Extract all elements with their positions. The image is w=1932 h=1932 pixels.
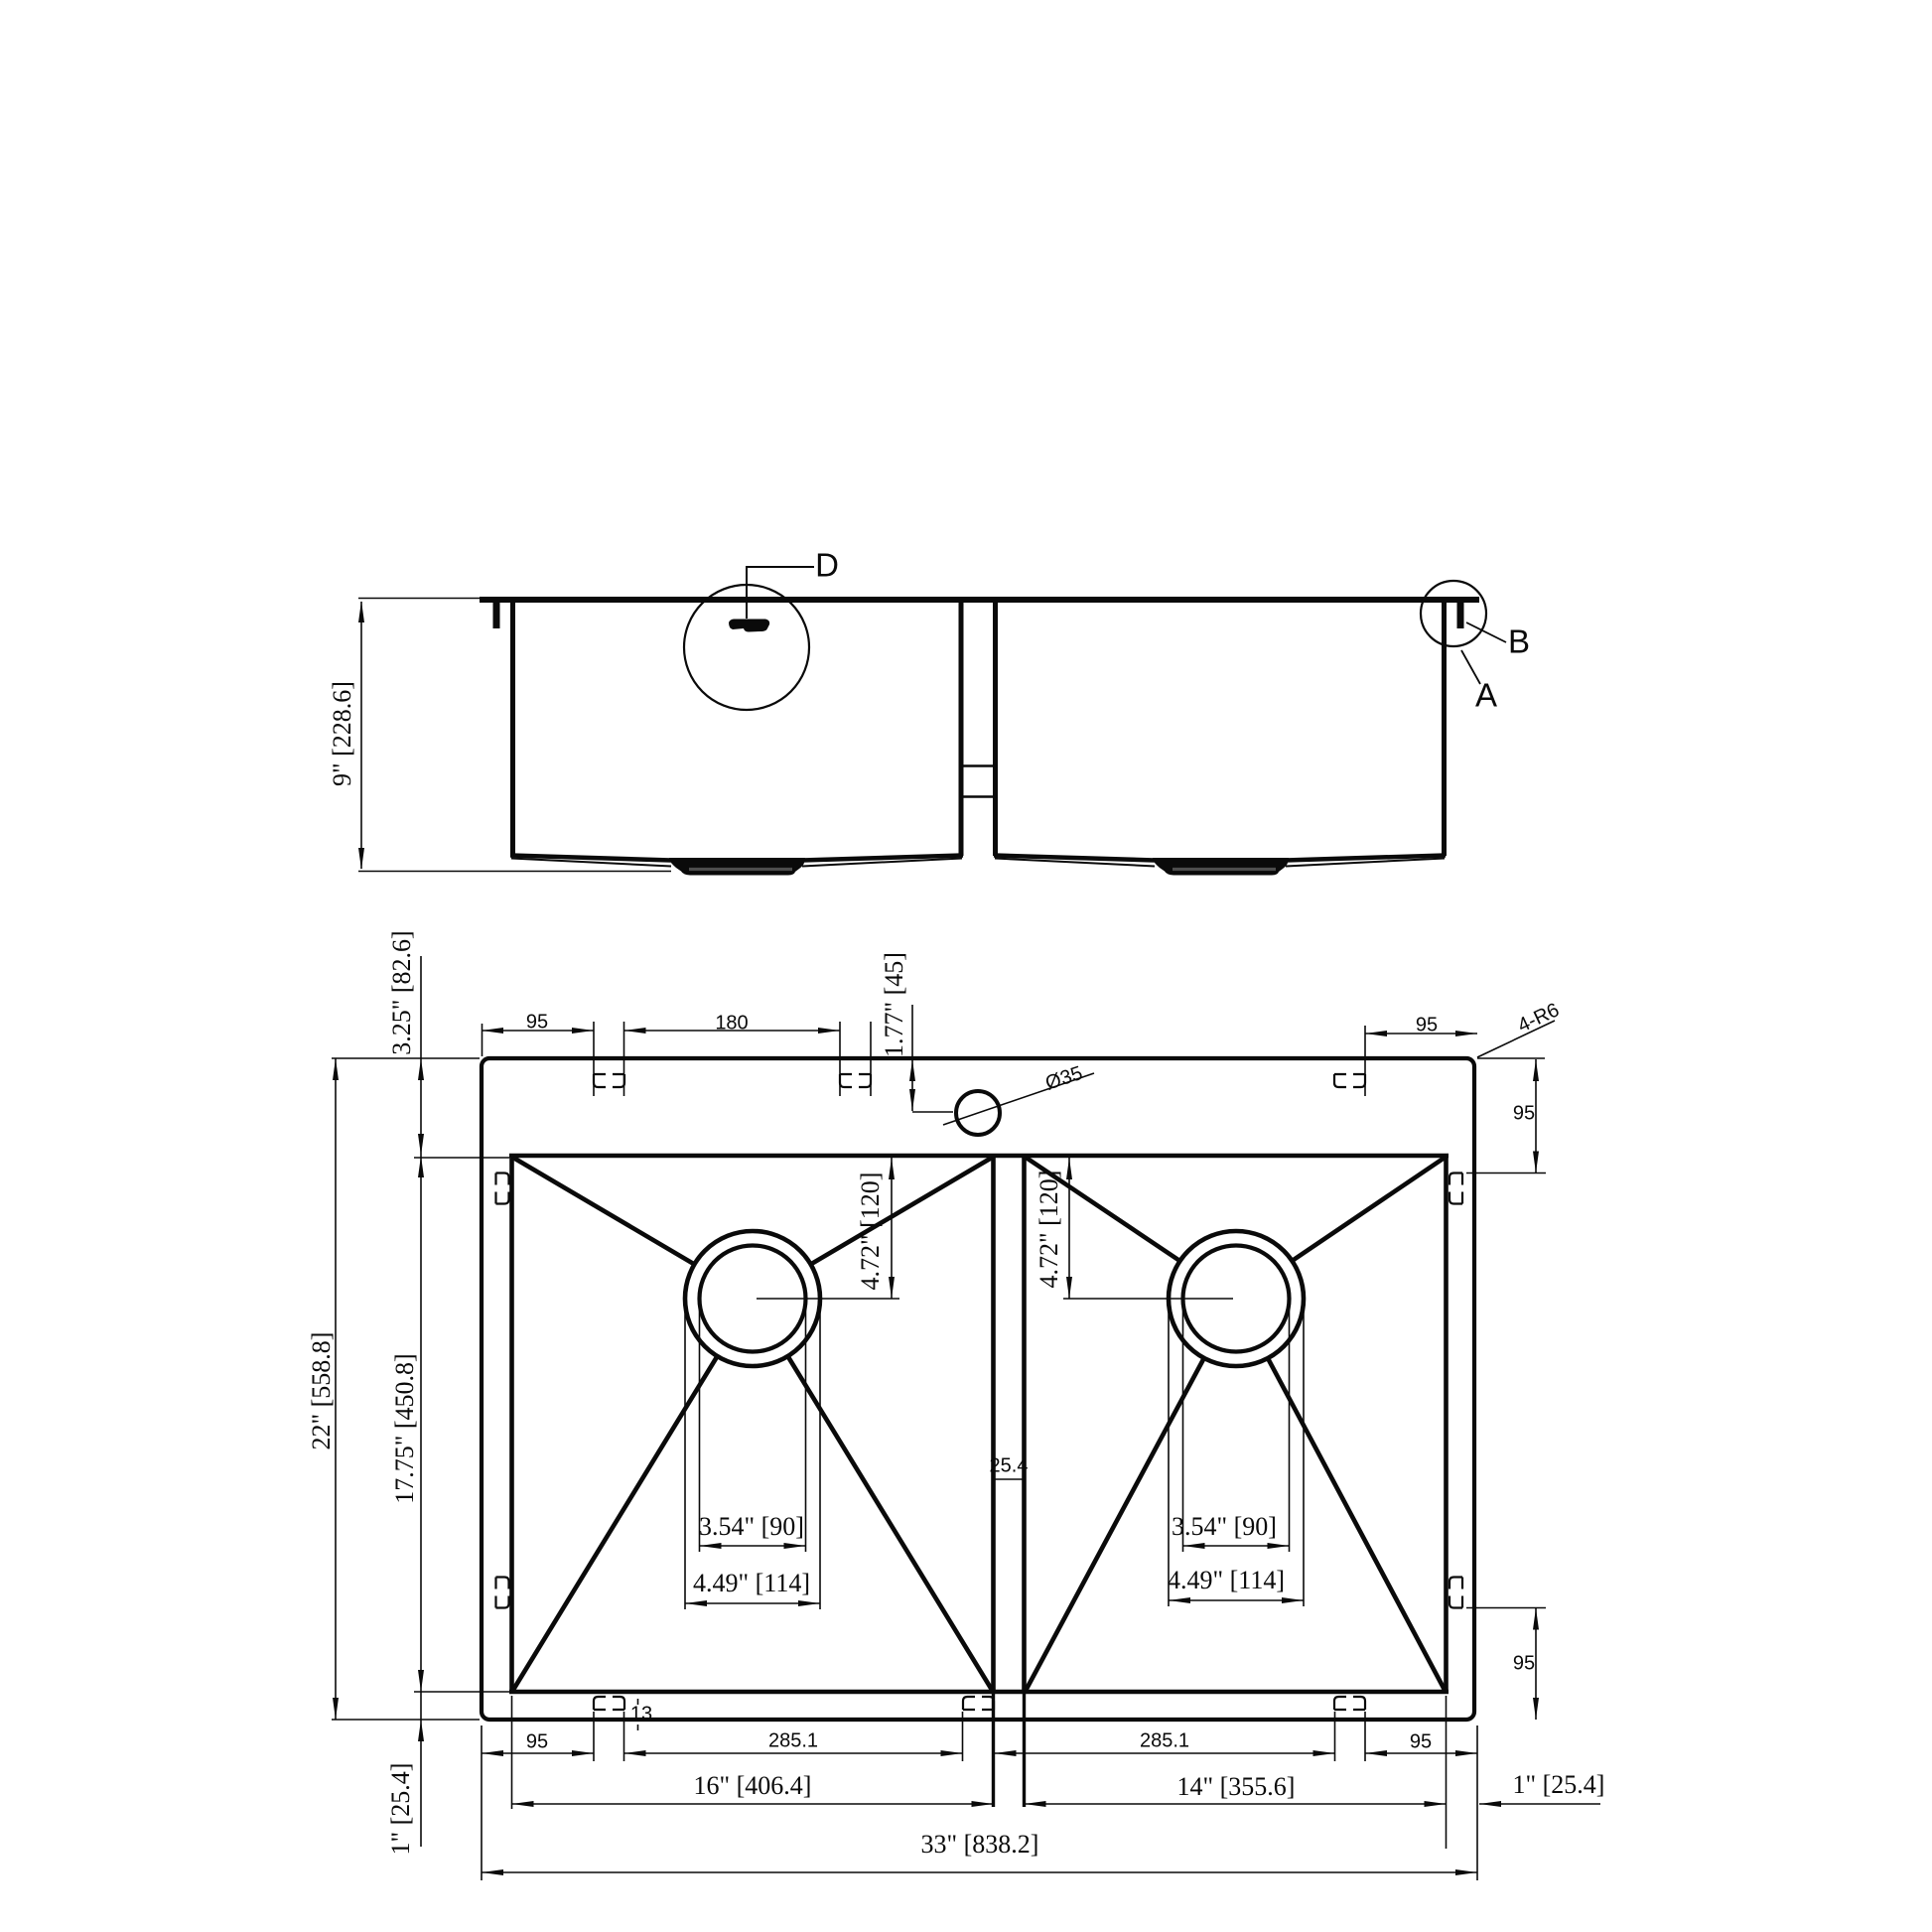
svg-text:3.54" [90]: 3.54" [90] (699, 1512, 804, 1541)
svg-text:95: 95 (1410, 1730, 1432, 1752)
svg-text:B: B (1508, 623, 1530, 660)
svg-text:1" [25.4]: 1" [25.4] (1513, 1770, 1605, 1799)
svg-text:14" [355.6]: 14" [355.6] (1177, 1772, 1296, 1801)
svg-text:1.77" [45]: 1.77" [45] (880, 952, 908, 1057)
svg-text:285.1: 285.1 (1140, 1729, 1189, 1751)
svg-text:33" [838.2]: 33" [838.2] (921, 1830, 1039, 1859)
svg-text:3.54" [90]: 3.54" [90] (1172, 1512, 1277, 1541)
svg-text:17.75" [450.8]: 17.75" [450.8] (390, 1353, 419, 1503)
svg-text:180: 180 (715, 1012, 748, 1034)
svg-text:4.49" [114]: 4.49" [114] (693, 1569, 810, 1597)
svg-text:22" [558.8]: 22" [558.8] (307, 1332, 336, 1450)
svg-text:95: 95 (1513, 1102, 1535, 1124)
svg-text:D: D (815, 547, 839, 584)
svg-text:4.72" [120]: 4.72" [120] (1035, 1171, 1063, 1289)
svg-text:95: 95 (1416, 1014, 1438, 1035)
svg-text:285.1: 285.1 (768, 1729, 818, 1751)
svg-text:4.49" [114]: 4.49" [114] (1168, 1566, 1285, 1594)
svg-text:4.72" [120]: 4.72" [120] (856, 1173, 885, 1291)
svg-text:3.25" [82.6]: 3.25" [82.6] (387, 930, 416, 1054)
svg-text:A: A (1475, 677, 1497, 714)
svg-text:13: 13 (630, 1703, 652, 1725)
svg-text:1" [25.4]: 1" [25.4] (386, 1763, 415, 1856)
svg-text:16" [406.4]: 16" [406.4] (694, 1771, 812, 1800)
svg-text:95: 95 (1513, 1652, 1535, 1674)
svg-text:95: 95 (526, 1011, 548, 1033)
svg-text:95: 95 (526, 1730, 548, 1752)
svg-text:25.4: 25.4 (990, 1454, 1029, 1476)
svg-text:9" [228.6]: 9" [228.6] (328, 681, 356, 786)
